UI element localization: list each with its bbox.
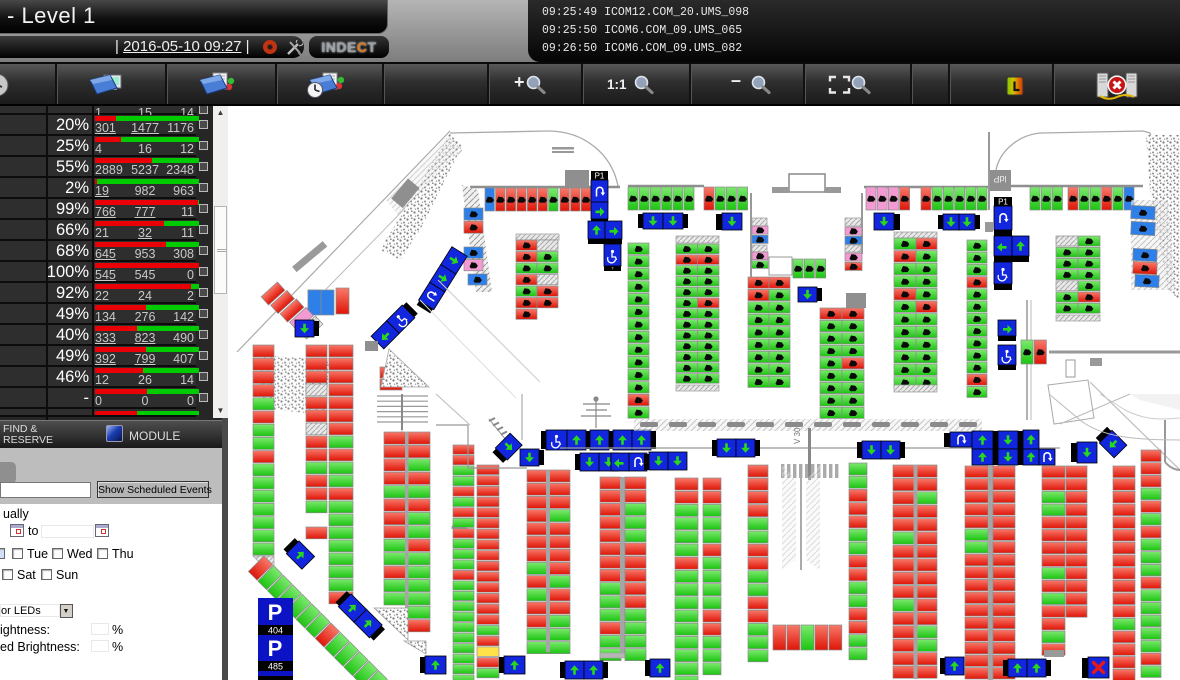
- svg-text:P: P: [268, 600, 283, 625]
- svg-text:P: P: [268, 636, 283, 661]
- svg-text:P1: P1: [595, 172, 605, 181]
- svg-text:P1: P1: [998, 198, 1008, 207]
- svg-text:ldP: ldP: [993, 174, 1006, 184]
- svg-text:485: 485: [268, 662, 283, 672]
- svg-text:404: 404: [268, 626, 283, 636]
- svg-text:V 30: V 30: [793, 427, 802, 444]
